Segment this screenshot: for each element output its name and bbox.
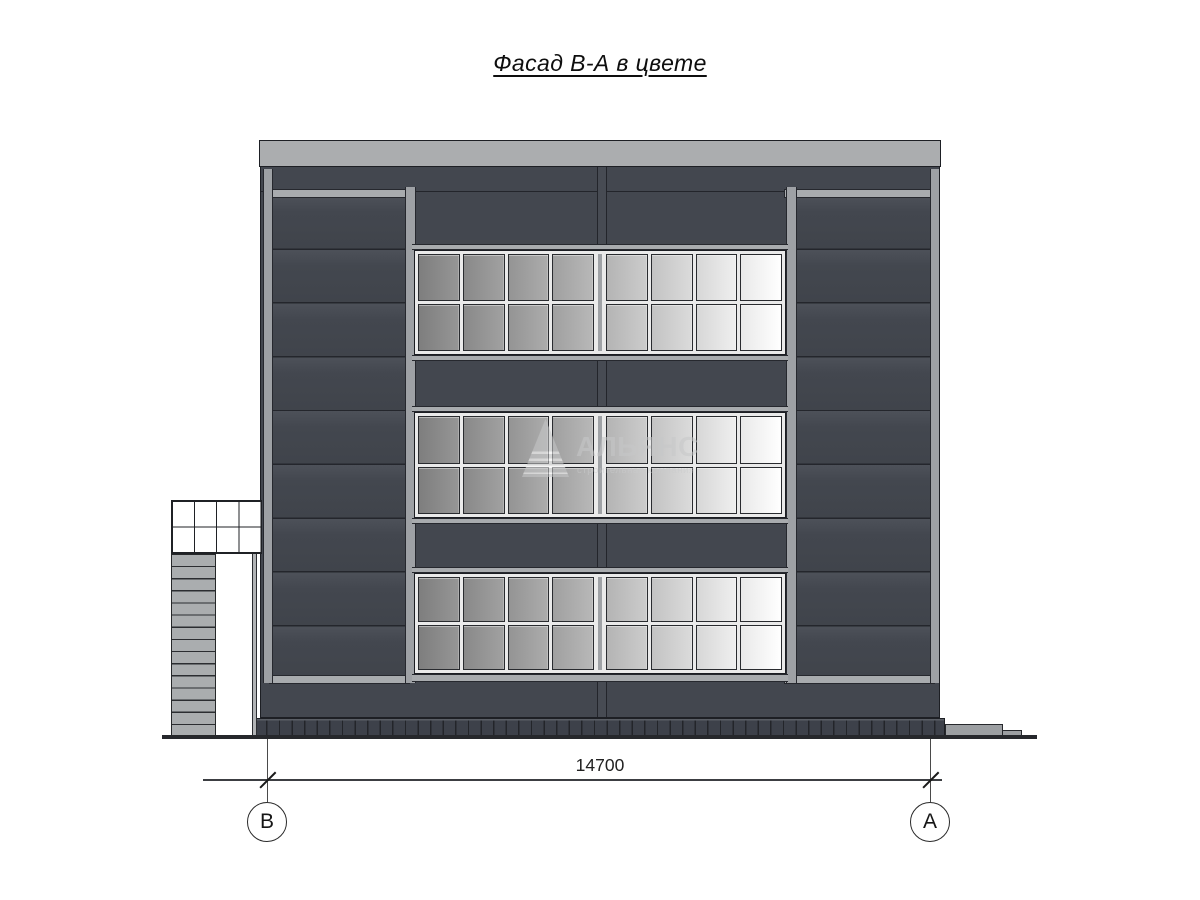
glazing-pane (552, 254, 594, 301)
window-band-3 (414, 573, 786, 674)
window-sill (412, 518, 788, 524)
glazing-pane (418, 416, 460, 464)
glazing-pane (552, 467, 594, 515)
window-band-2 (414, 412, 786, 518)
dimension-label: 14700 (0, 755, 1200, 776)
glazing-pane (740, 254, 782, 301)
glazing-pane (463, 467, 505, 515)
glazing-pane (651, 254, 693, 301)
glazing-pane (418, 625, 460, 670)
elevation-canvas: Фасад В-А в цвете АЛЬЯНС строи (0, 0, 1200, 900)
glazing-pane (696, 467, 738, 515)
axis-marker-a: А (910, 802, 950, 842)
band-center-mullion (597, 416, 603, 514)
glazing-pane (508, 577, 550, 622)
left-edge-pilaster (263, 169, 273, 683)
glazing-pane (508, 625, 550, 670)
glazing-pane (606, 577, 648, 622)
glazing-pane (696, 416, 738, 464)
glazing-pane (740, 625, 782, 670)
stair-glazing-grid (171, 500, 262, 554)
band-center-mullion (597, 254, 603, 351)
glazing-pane (696, 254, 738, 301)
drawing-title: Фасад В-А в цвете (0, 50, 1200, 77)
glazing-pane (606, 467, 648, 515)
right-wing-top-rail (784, 189, 935, 198)
glazing-pane (606, 254, 648, 301)
glazing-pane (651, 467, 693, 515)
dimension-line (203, 779, 942, 781)
left-wing-panels (271, 196, 405, 675)
glazing-pane (740, 416, 782, 464)
glazing-pane (651, 625, 693, 670)
glazing-pane (463, 577, 505, 622)
glazing-pane (740, 304, 782, 351)
glazing-pane (463, 304, 505, 351)
window-sill (412, 355, 788, 361)
glazing-pane (606, 625, 648, 670)
glazing-pane (552, 625, 594, 670)
ground-line (162, 735, 1037, 739)
glazing-pane (508, 467, 550, 515)
window-band-1 (414, 250, 786, 355)
roof-parapet (259, 140, 941, 167)
glazing-pane (418, 577, 460, 622)
left-wing-bottom-rail (269, 675, 410, 684)
left-wing-top-rail (269, 189, 410, 198)
glazing-pane (606, 304, 648, 351)
glazing-pane (552, 577, 594, 622)
glazing-pane (696, 304, 738, 351)
plinth (254, 718, 945, 736)
glazing-pane (651, 416, 693, 464)
glazing-pane (696, 625, 738, 670)
band-center-mullion (597, 577, 603, 670)
glazing-pane (463, 625, 505, 670)
glazing-pane (606, 416, 648, 464)
glazing-pane (552, 304, 594, 351)
glazing-pane (463, 254, 505, 301)
stair-tower (171, 554, 216, 736)
right-inner-pilaster (786, 187, 797, 683)
facade-body (260, 166, 940, 718)
right-edge-pilaster (930, 169, 940, 683)
entrance-jamb (252, 554, 257, 735)
glazing-pane (418, 304, 460, 351)
window-sill (412, 674, 788, 682)
glazing-pane (651, 577, 693, 622)
axis-marker-b: В (247, 802, 287, 842)
glazing-pane (508, 254, 550, 301)
right-wing-panels (795, 196, 930, 675)
glazing-pane (508, 304, 550, 351)
glazing-pane (696, 577, 738, 622)
glazing-pane (418, 467, 460, 515)
glazing-pane (651, 304, 693, 351)
glazing-pane (463, 416, 505, 464)
glazing-pane (740, 467, 782, 515)
glazing-pane (740, 577, 782, 622)
glazing-pane (552, 416, 594, 464)
right-wing-bottom-rail (784, 675, 935, 684)
glazing-pane (418, 254, 460, 301)
glazing-pane (508, 416, 550, 464)
